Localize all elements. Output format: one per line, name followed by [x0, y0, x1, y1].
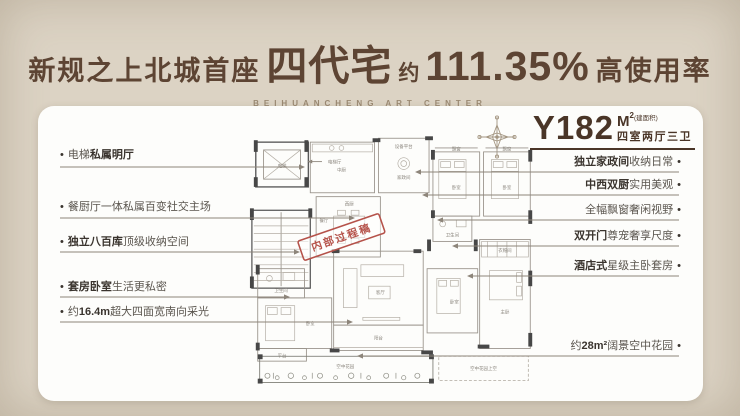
kitchen-chinese: 中厨 [310, 142, 374, 193]
header: 新规之上北城首座 四代宅 约 111.35% 高使用率 BEIHUANCHENG… [0, 32, 740, 108]
bullet-dot-icon: • [677, 156, 681, 168]
annotation-sky-garden: 约28m²阔景空中花园• [570, 340, 681, 353]
svg-text:飘窗: 飘窗 [452, 145, 461, 152]
elevator-shaft: 电梯 [256, 142, 309, 187]
svg-text:卫生间: 卫生间 [446, 232, 460, 239]
svg-text:客厅: 客厅 [376, 289, 385, 296]
terrace: 平台 [258, 348, 307, 361]
bathroom-north: 卫生间 [433, 216, 472, 241]
bullet-dot-icon: • [60, 306, 64, 318]
living-room: 客厅 [334, 251, 424, 325]
bedroom-north-a: 飘窗 卧室 [433, 145, 480, 216]
unit-title-detail: M 2 (建面积) 四室两厅三卫 [617, 114, 692, 143]
headline-prefix: 新规之上北城首座 [28, 49, 260, 88]
svg-text:家政间: 家政间 [397, 174, 411, 181]
unit-area-note: (建面积) [634, 116, 658, 123]
approx-label: 约 [398, 57, 419, 87]
svg-text:衣帽间: 衣帽间 [498, 247, 512, 254]
floorplan-drawing: 电梯 电梯厅 中厨 [248, 122, 540, 392]
svg-text:中厨: 中厨 [337, 166, 346, 173]
bullet-dot-icon: • [677, 230, 681, 242]
svg-text:空中花园: 空中花园 [336, 363, 354, 370]
bullet-dot-icon: • [60, 236, 64, 248]
bedroom-south: 卧室 [427, 269, 478, 333]
plants-icon [265, 373, 420, 380]
annotation-storage: •独立八百库顶级收纳空间 [60, 236, 189, 249]
annotation-elevator-hall: •电梯私属明厅 [60, 149, 134, 162]
annotation-south-facing: •约16.4m超大四面宽南向采光 [60, 306, 209, 319]
bullet-dot-icon: • [677, 204, 681, 216]
svg-text:飘窗: 飘窗 [502, 145, 511, 152]
bedroom-north-b: 飘窗 卧室 [484, 145, 531, 216]
unit-title: Y182 M 2 (建面积) 四室两厅三卫 [530, 114, 695, 150]
svg-text:设备平台: 设备平台 [395, 143, 413, 150]
bullet-dot-icon: • [60, 201, 64, 213]
svg-text:主卧: 主卧 [500, 308, 509, 315]
svg-text:电梯厅: 电梯厅 [328, 159, 342, 166]
annotation-double-door: 双开门尊宠奢享尺度• [574, 230, 681, 243]
headline-suffix: 高使用率 [596, 49, 712, 88]
annotation-dining-kitchen: •餐厨厅一体私属百变社交主场 [60, 201, 211, 214]
bullet-dot-icon: • [60, 149, 64, 161]
svg-text:卧室: 卧室 [306, 320, 315, 327]
svg-text:卧室: 卧室 [450, 299, 459, 306]
annotation-suite-bedroom: •套房卧室生活更私密 [60, 281, 167, 294]
svg-text:电梯: 电梯 [278, 162, 287, 169]
annotation-master-suite: 酒店式星级主卧套房• [574, 260, 681, 273]
unit-model: Y182 [533, 114, 614, 142]
bullet-dot-icon: • [677, 340, 681, 352]
svg-text:卧室: 卧室 [452, 184, 461, 191]
master-bedroom: 衣帽间 主卧 [480, 239, 531, 348]
poster: 新规之上北城首座 四代宅 约 111.35% 高使用率 BEIHUANCHENG… [0, 0, 740, 416]
floorplan-card: Y182 M 2 (建面积) 四室两厅三卫 电梯 [38, 106, 703, 401]
balcony: 阳台 [334, 325, 424, 350]
sky-garden: 空中花园 [258, 354, 434, 383]
svg-text:平台: 平台 [278, 352, 287, 359]
svg-text:阳台: 阳台 [374, 335, 383, 342]
usage-percentage: 111.35% [425, 43, 589, 90]
annotation-double-kitchen: 中西双厨实用美观• [585, 179, 681, 192]
annotation-laundry: 独立家政间收纳日常• [574, 156, 681, 169]
bullet-dot-icon: • [677, 260, 681, 272]
elevator-hall-label: 电梯厅 [307, 159, 341, 166]
svg-text:西厨: 西厨 [345, 201, 354, 207]
laundry-room: 设备平台 家政间 [378, 138, 429, 193]
sky-garden-open-above: 空中花园上空 [439, 356, 529, 380]
headline: 新规之上北城首座 四代宅 约 111.35% 高使用率 [0, 32, 740, 92]
svg-text:卧室: 卧室 [502, 184, 511, 191]
suite-bedroom: 卧室 [258, 298, 332, 349]
svg-text:空中花园上空: 空中花园上空 [470, 365, 497, 372]
bullet-dot-icon: • [60, 281, 64, 293]
annotation-bay-window: 全幅飘窗奢闲视野• [585, 204, 681, 217]
unit-layout: 四室两厅三卫 [617, 132, 692, 143]
structural-walls [250, 136, 532, 354]
bullet-dot-icon: • [677, 179, 681, 191]
headline-highlight: 四代宅 [266, 32, 392, 92]
svg-text:餐厅: 餐厅 [319, 217, 328, 224]
svg-text:卫生间: 卫生间 [274, 287, 288, 294]
unit-symbol: M [617, 114, 630, 129]
